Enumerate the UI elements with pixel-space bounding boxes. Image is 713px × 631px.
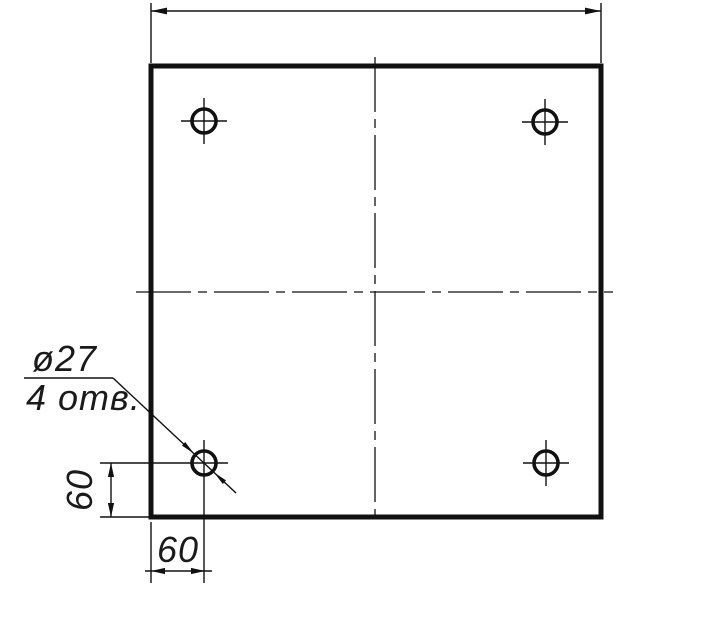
- dimension-bottom-60: 60: [145, 522, 212, 583]
- dimension-value-bottom: 60: [157, 529, 199, 570]
- dimension-left-60: 60: [59, 463, 149, 517]
- engineering-drawing: ø27 4 отв. 60 60: [0, 0, 713, 631]
- hole-diameter-label: ø27: [32, 338, 98, 379]
- arrowhead-down: [108, 503, 114, 517]
- leader-arrowhead-lower: [214, 473, 226, 484]
- arrowhead-right: [585, 8, 601, 15]
- arrowhead-left: [151, 8, 167, 15]
- drawing-svg: ø27 4 отв. 60 60: [0, 0, 713, 631]
- dimension-top-overall: [151, 3, 601, 63]
- leader-arrowhead-upper: [182, 442, 194, 453]
- hole-count-label: 4 отв.: [26, 377, 141, 418]
- arrowhead-up: [108, 463, 114, 477]
- hole-top-right: [522, 99, 568, 145]
- hole-bottom-right: [523, 440, 569, 486]
- hole-top-left: [181, 98, 227, 144]
- dimension-value-left: 60: [59, 469, 100, 511]
